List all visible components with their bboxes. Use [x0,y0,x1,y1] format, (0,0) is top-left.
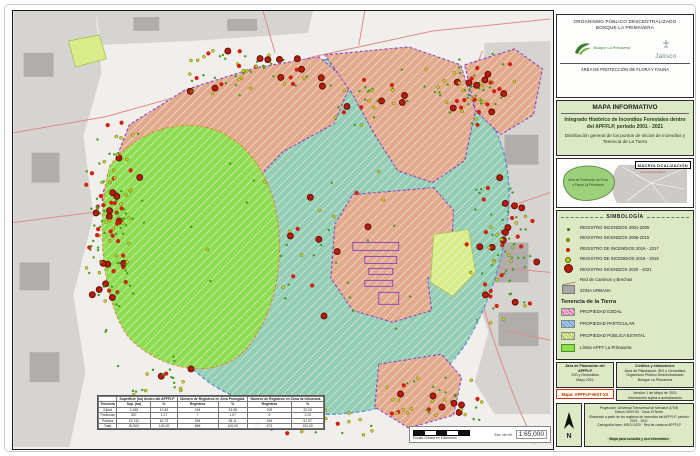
legend-header: SIMBOLOGÍA [561,214,689,220]
scale-value: 1:65,000 [516,430,547,439]
map-subtitle-2: Distribución general de los puntos de in… [561,133,689,145]
macrolocalization-box: MACROLOCALIZACIÓN Área Metropolitana Áre… [556,158,694,208]
legend-item-urban-zone: ZONA URBANA [561,285,689,296]
org-subtitle: ÁREA DE PROTECCIÓN DE FLORA Y FAUNA [560,63,690,72]
scale-ref-label: Esc. de ref. [495,433,513,437]
planning-area-box: Área de Planeación del APFFLP SIG y Geom… [556,362,614,388]
ejidal-swatch-icon [561,308,575,316]
footer-row: N Proyección: Universal Transversal de M… [556,403,694,447]
map-subtitle-1: Integrado Histórico de Incendios Foresta… [561,117,689,130]
tenure-item-limite: Límite APFF La Primavera [561,342,689,354]
jalisco-emblem-icon [661,40,671,49]
apff-label-1: Área de Protección de Flora [568,178,608,182]
tenure-title: Tenencia de la Tierra [561,299,689,305]
map-code-box: Mapa: APFFLP-HIST-XX [556,389,614,399]
statistics-table: Superficie (ha) dentro del APFFLPNúmero … [97,395,325,430]
legend-item-fires-2018-2019: REGISTRO DE INCENDIOS 2018 - 2019 [561,254,689,265]
apff-limit-polygon [102,125,279,368]
map-sheet: { "header": { "org_line1": "ORGANISMO PÚ… [0,0,700,456]
tenure-item-publica: PROPIEDAD PÚBLICA ESTATAL [561,330,689,342]
legend-item-fires-2006-2015: REGISTRO INCENDIOS 2006-2015 [561,233,689,244]
legend-title: SIMBOLOGÍA [606,214,643,220]
legend-item-fires-2016-2017: REGISTRO DE INCENDIOS 2016 - 2017 [561,243,689,254]
urban-polygon-icon [562,285,575,294]
scale-caption: Escala Gráfica en Kilómetros [413,436,470,440]
version-box: Versión 1 de Mayo de 2021 Información su… [616,389,694,401]
credits-box: Créditos y elaboración: Área de Planeaci… [616,362,694,388]
scale-bar: Escala Gráfica en Kilómetros Esc. de ref… [409,426,551,443]
logo-left-label: Bosque La Primavera [594,46,631,50]
legend-item-fires-2001-2005: REGISTRO INCENDIOS 2001-2005 [561,222,689,233]
credits-row: Área de Planeación del APFFLP SIG y Geom… [556,362,694,401]
map-canvas [13,11,551,447]
particular-swatch-icon [561,320,575,328]
metro-label: Área Metropolitana [640,170,666,174]
map-title-block: MAPA INFORMATIVO Integrado Histórico de … [556,100,694,156]
map-title: MAPA INFORMATIVO [561,104,689,114]
layout-panel: ORGANISMO PÚBLICO DESCENTRALIZADO BOSQUE… [556,14,694,447]
jalisco-logo: Jalisco [655,36,676,60]
apff-label-2: y Fauna La Primavera [572,183,604,187]
map-frame: Superficie (ha) dentro del APFFLPNúmero … [12,10,554,450]
macrolocalization-label: MACROLOCALIZACIÓN [635,161,691,169]
north-letter: N [566,433,571,440]
legend-item-fires-2020-2021: REGISTRO INCENDIOS 2020 - 2021 [561,264,689,275]
projection-box: Proyección: Universal Transversal de Mer… [584,403,694,447]
organization-header: ORGANISMO PÚBLICO DESCENTRALIZADO BOSQUE… [556,14,694,98]
tenure-item-particular: PROPIEDAD PARTICULAR [561,318,689,330]
org-line2: BOSQUE LA PRIMAVERA [557,25,693,31]
bosque-primavera-logo: Bosque La Primavera [574,41,631,55]
publica-swatch-icon [561,332,575,340]
legend-item-roads: Red de Caminos y Brechas [561,275,689,286]
limite-swatch-icon [561,344,575,352]
leaf-icon [574,41,592,55]
legend-box: SIMBOLOGÍA REGISTRO INCENDIOS 2001-2005 … [556,210,694,360]
north-arrow-icon [562,411,576,433]
north-arrow-box: N [556,403,582,447]
tenure-item-ejidal: PROPIEDAD EJIDAL [561,306,689,318]
logo-right-label: Jalisco [655,54,676,60]
